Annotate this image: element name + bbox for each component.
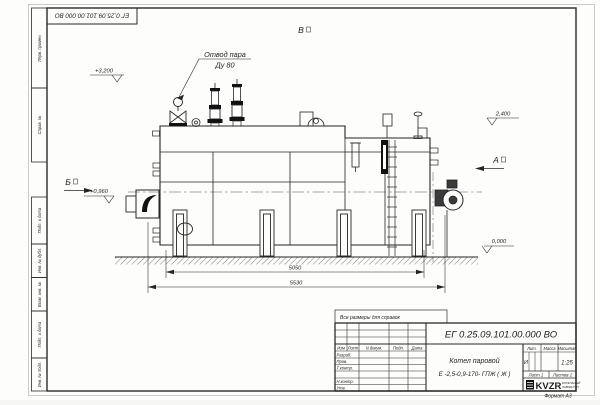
lit-header: Лит. — [526, 346, 537, 351]
steam-callout-line1: Отвод пара — [204, 50, 246, 59]
burner-unit — [126, 190, 159, 218]
product-name-line2: Е -2,5-0,9-170- ГПЖ ( Ж ) — [439, 371, 511, 378]
view-marker-right: А — [475, 155, 506, 171]
elevation-0000: 0,000 — [482, 239, 514, 253]
sheets-cell: Листов 2 — [552, 373, 573, 378]
margin-label: Перв. примен. — [37, 34, 42, 61]
deck-port — [192, 119, 200, 127]
rear-ladder — [387, 140, 397, 256]
top-inverted-stamp: ЕГ 0.25.09.101.00.000 ВО — [47, 8, 137, 24]
svg-text:Б: Б — [65, 177, 71, 187]
col-sign: Подп. — [393, 346, 404, 351]
margin-label: Подп. и дата — [37, 321, 42, 347]
steam-callout-line2: Ду 80 — [214, 61, 234, 70]
margin-label: Инв. № подл. — [37, 362, 42, 387]
view-marker-top: В — [298, 25, 310, 35]
pump-unit — [433, 172, 463, 262]
row-checked: Пров. — [337, 359, 348, 364]
reference-note-box: Все размеры для справок — [335, 310, 447, 323]
margin-label: Подп. и дата — [37, 207, 42, 233]
svg-text:2,400: 2,400 — [495, 112, 511, 118]
reference-note: Все размеры для справок — [340, 315, 401, 321]
drum-top-fittings — [300, 112, 324, 126]
col-izm: Изм — [337, 346, 345, 351]
manufacturer-logo: KVZR КОТЕЛЬНЫЙ ЗАВОД РЭП — [526, 380, 581, 392]
scale-value: 1:25 — [561, 361, 573, 367]
view-markers: В Б А — [64, 25, 506, 193]
view-marker-left: Б — [64, 177, 93, 193]
margin-label: Справ. № — [37, 115, 42, 134]
svg-text:В: В — [298, 25, 304, 35]
row-developed: Разраб. — [337, 353, 352, 358]
steam-outlet-valve — [169, 98, 187, 127]
margin-label: Взам. инв. № — [37, 281, 42, 307]
elevation-marks: +3,200 2,400 +0,960 0,000 — [84, 69, 519, 254]
margin-label: Инв. № дубл. — [37, 248, 42, 273]
scale-header: Масштаб — [557, 346, 577, 351]
elevation-3200: +3,200 — [90, 69, 124, 83]
svg-text:0,000: 0,000 — [492, 239, 507, 245]
col-date: Дата — [411, 346, 424, 351]
col-doc: N докум. — [366, 346, 383, 351]
format-note: Формат А3 — [544, 394, 572, 400]
rear-fittings — [430, 148, 438, 165]
dim-5530: 5530 — [290, 281, 303, 287]
elevation-2400: 2,400 — [487, 112, 519, 126]
logo-text: KVZR — [536, 381, 562, 392]
row-ncontrol: Н.контр. — [337, 379, 354, 384]
sheet-cell: Лист 1 — [528, 373, 544, 378]
boiler-drawing: ЕГ 0.25.09.101.00.000 ВО Перв. примен. С… — [0, 0, 600, 400]
doc-number: ЕГ 0.25.09.101.00.000 ВО — [445, 330, 558, 341]
svg-text:+0,960: +0,960 — [90, 189, 109, 195]
water-level-column — [350, 143, 361, 172]
ground — [115, 257, 478, 265]
safety-valve-2 — [230, 79, 245, 126]
svg-text:+3,200: +3,200 — [95, 69, 114, 75]
rear-top-valve — [383, 112, 427, 139]
left-margin-labels: Перв. примен. Справ. № Подп. и дата Инв.… — [37, 34, 42, 387]
col-list: Лист — [347, 346, 359, 351]
svg-text:А: А — [492, 155, 499, 165]
logo-sub2: ЗАВОД РЭП — [562, 385, 579, 389]
lit-value: И — [524, 360, 528, 366]
row-tcontrol: Т.контр. — [337, 366, 354, 371]
row-approved: Утв. — [337, 386, 346, 391]
mass-header: Масса — [543, 346, 556, 351]
product-name-line1: Котел паровой — [449, 357, 499, 365]
gauge-glass — [381, 140, 388, 174]
dim-5050: 5050 — [289, 266, 302, 272]
drawing-sheet: ЕГ 0.25.09.101.00.000 ВО Перв. примен. С… — [0, 0, 600, 400]
flame-icon — [142, 195, 157, 212]
safety-valve-1 — [208, 83, 223, 126]
top-stamp-text: ЕГ 0.25.09.101.00.000 ВО — [55, 12, 129, 19]
